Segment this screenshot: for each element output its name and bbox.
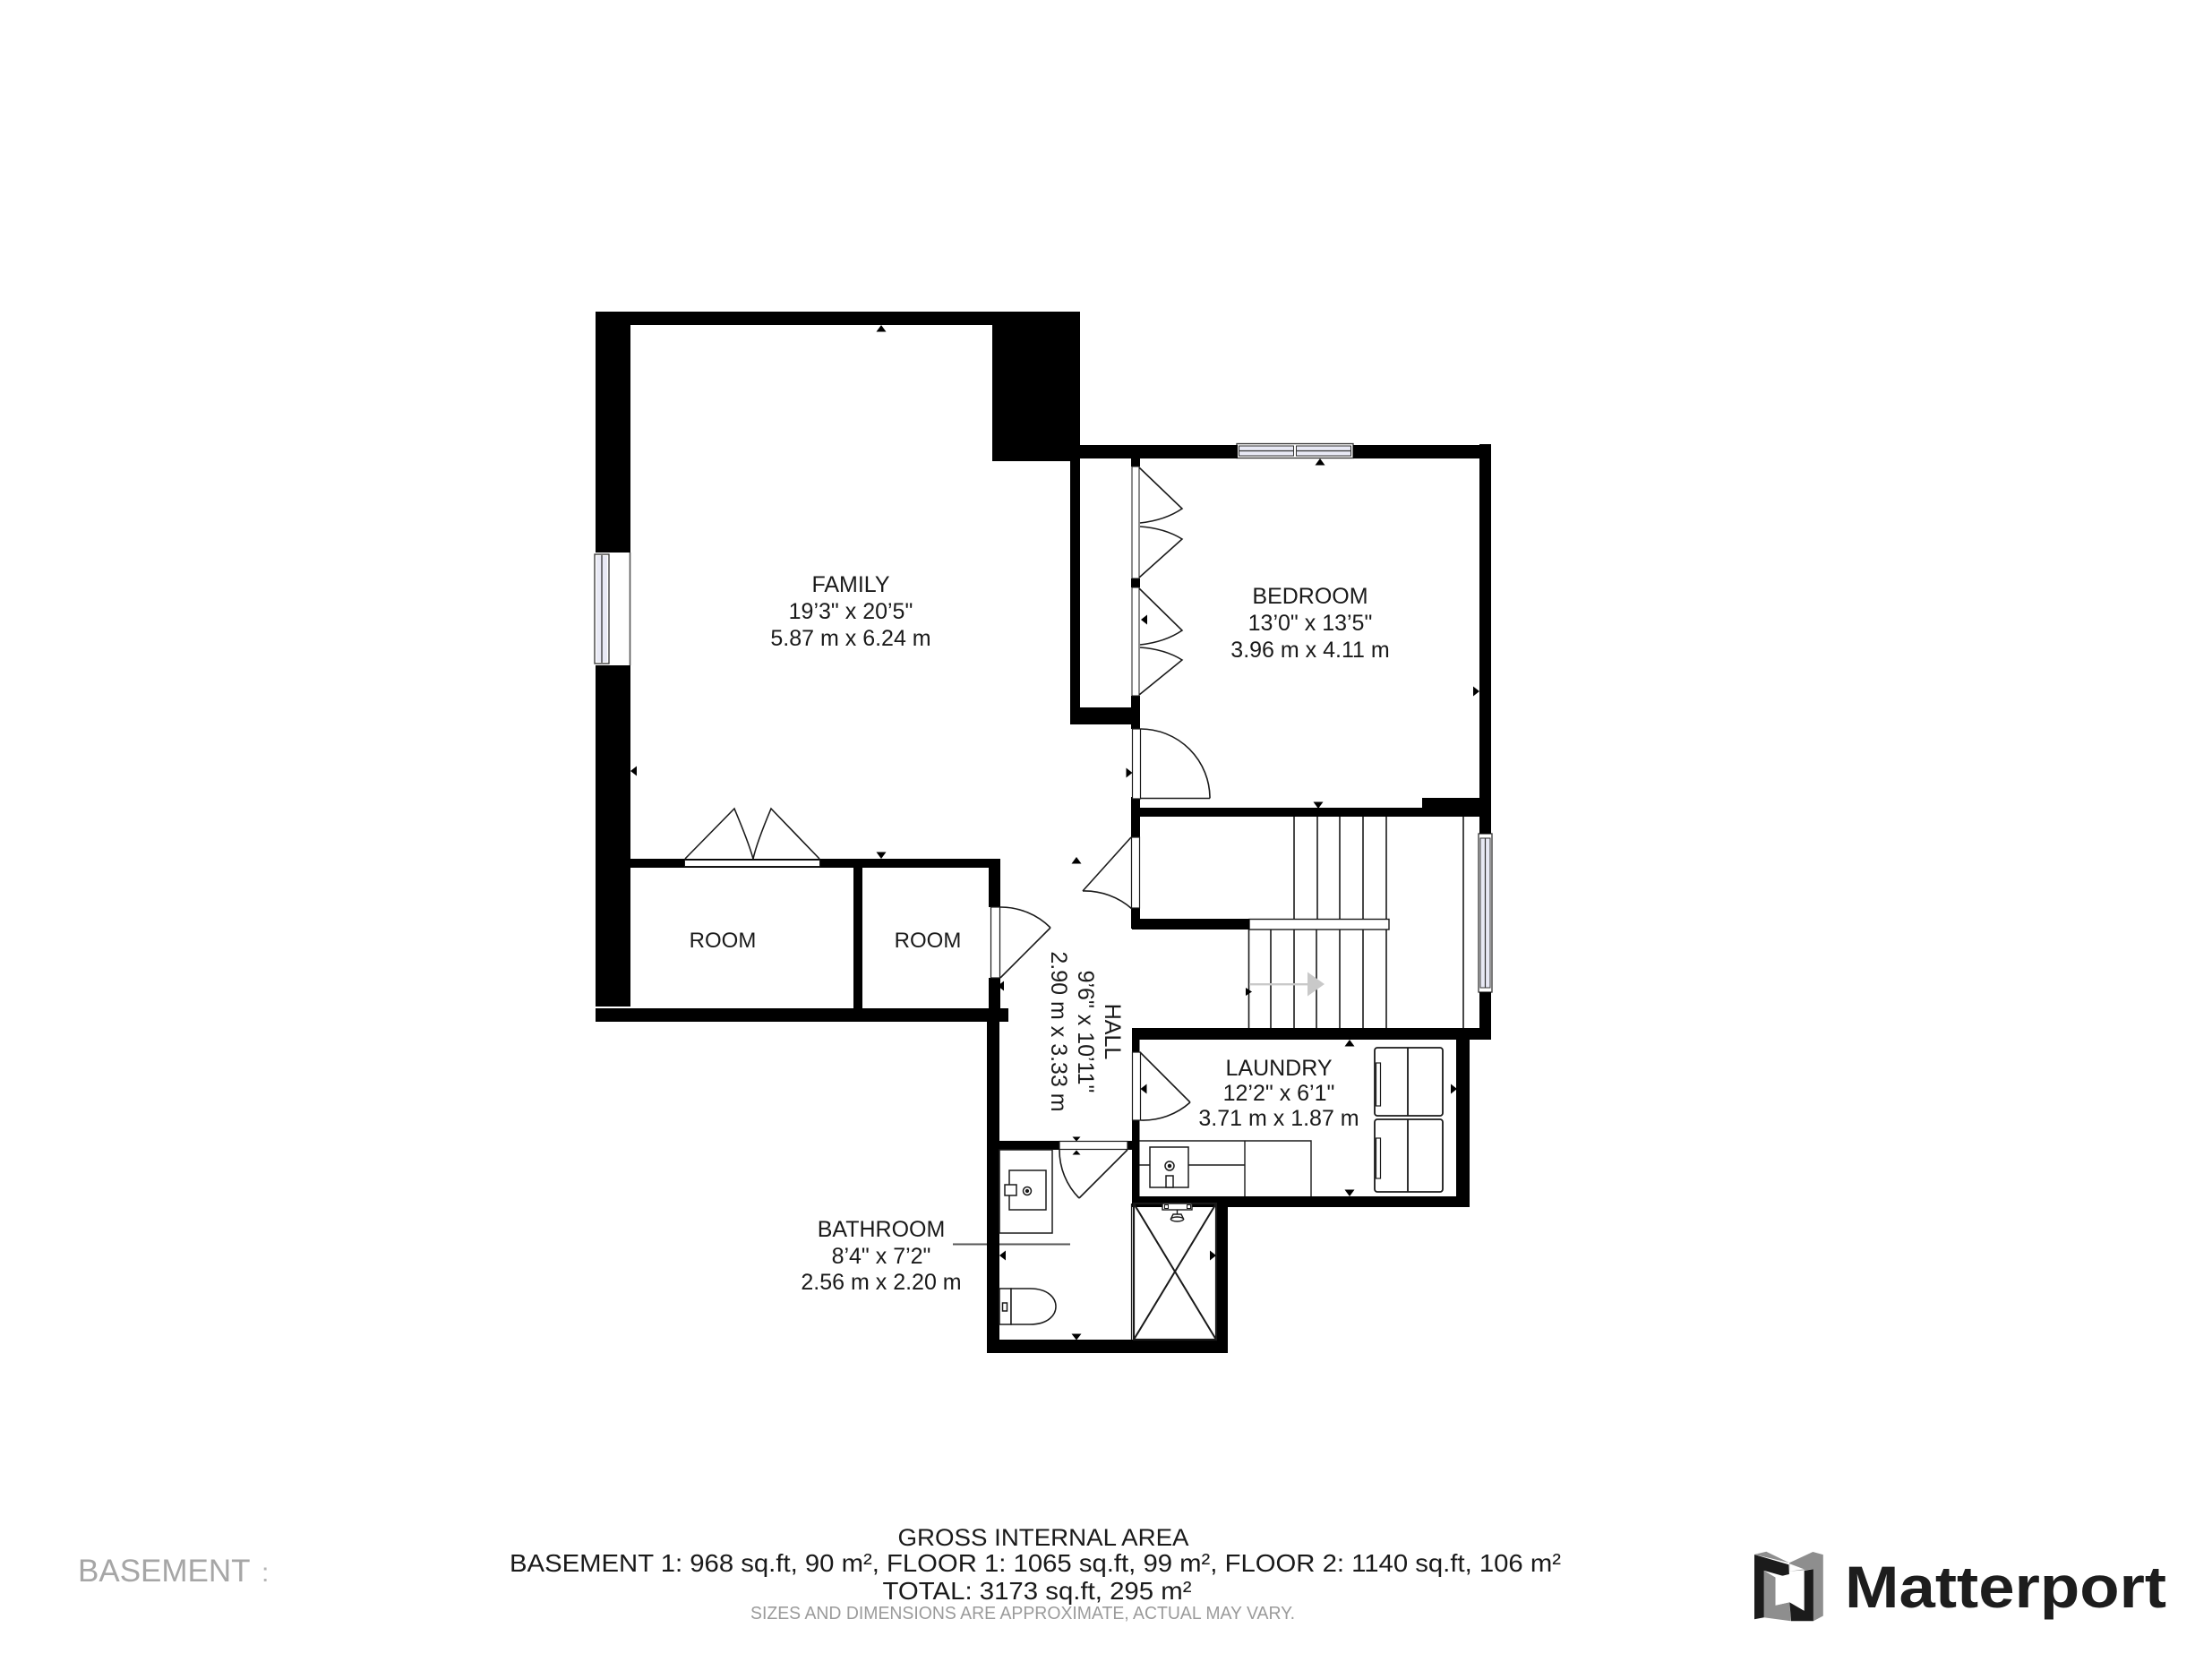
svg-text:Matterport: Matterport: [1845, 1554, 2166, 1620]
svg-text:BEDROOM: BEDROOM: [1252, 584, 1367, 609]
svg-text:BASEMENT: BASEMENT: [78, 1554, 251, 1589]
svg-text:12’2" x 6’1": 12’2" x 6’1": [1223, 1081, 1335, 1106]
svg-text:ROOM: ROOM: [895, 929, 962, 953]
svg-text:9’6" x 10’11": 9’6" x 10’11": [1073, 971, 1098, 1093]
svg-text:HALL: HALL: [1100, 1004, 1125, 1060]
svg-text:8’4" x 7’2": 8’4" x 7’2": [832, 1244, 931, 1269]
svg-text:TOTAL: 3173 sq.ft, 295 m²: TOTAL: 3173 sq.ft, 295 m²: [883, 1577, 1192, 1605]
svg-text:GROSS INTERNAL AREA: GROSS INTERNAL AREA: [898, 1524, 1189, 1551]
svg-text:FAMILY: FAMILY: [811, 572, 889, 597]
svg-text:BASEMENT 1: 968 sq.ft, 90 m²,: BASEMENT 1: 968 sq.ft, 90 m², FLOOR 1: 1…: [510, 1549, 1561, 1577]
svg-text:2.90 m x 3.33 m: 2.90 m x 3.33 m: [1046, 951, 1071, 1111]
svg-text:2.56 m x 2.20 m: 2.56 m x 2.20 m: [801, 1270, 961, 1295]
svg-text:3.96 m x 4.11 m: 3.96 m x 4.11 m: [1230, 638, 1389, 663]
svg-text:LAUNDRY: LAUNDRY: [1225, 1056, 1332, 1081]
svg-text:19’3" x 20’5": 19’3" x 20’5": [789, 599, 913, 624]
svg-text:BATHROOM: BATHROOM: [818, 1217, 946, 1242]
svg-text::: :: [261, 1558, 269, 1588]
svg-text:13’0" x 13’5": 13’0" x 13’5": [1248, 611, 1373, 636]
svg-text:5.87 m x 6.24 m: 5.87 m x 6.24 m: [770, 626, 930, 651]
svg-text:3.71 m x 1.87 m: 3.71 m x 1.87 m: [1198, 1106, 1359, 1131]
svg-text:SIZES AND DIMENSIONS ARE APPRO: SIZES AND DIMENSIONS ARE APPROXIMATE, AC…: [750, 1604, 1295, 1623]
svg-text:ROOM: ROOM: [690, 929, 757, 953]
